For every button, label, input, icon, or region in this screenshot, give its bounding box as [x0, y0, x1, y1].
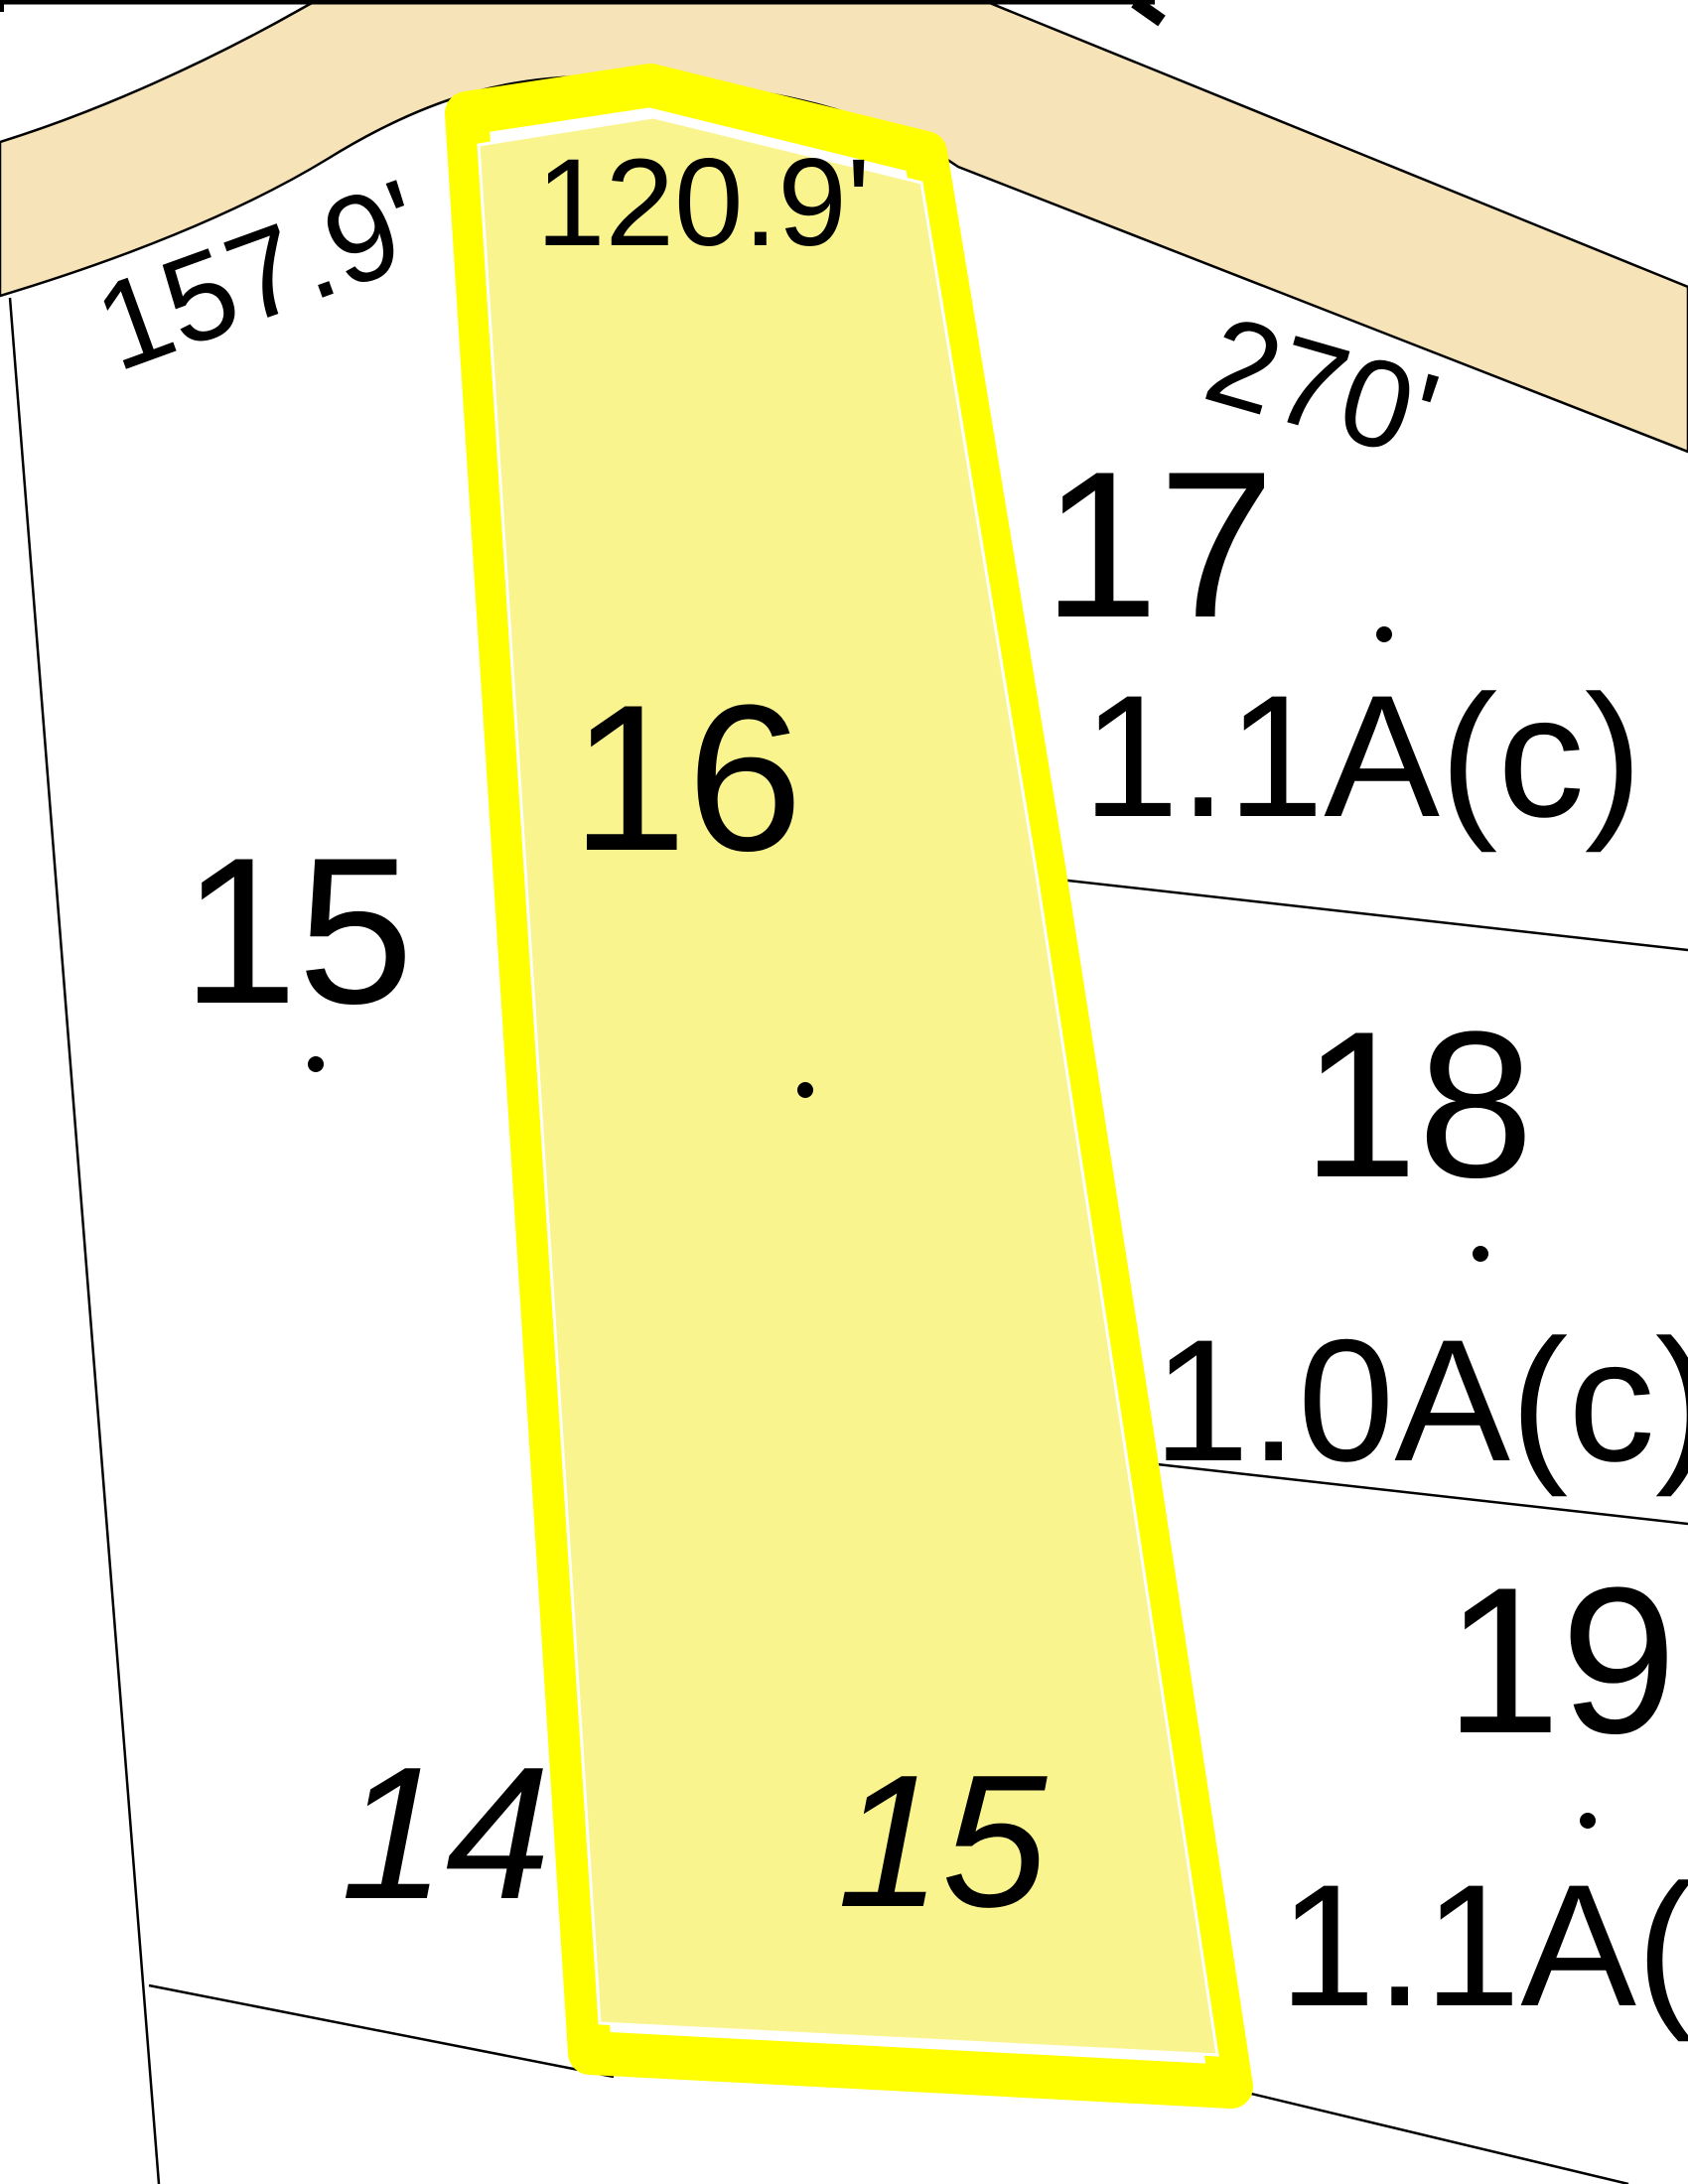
- parcel-17-centroid-dot: [1376, 626, 1392, 642]
- parcel-18-label: 18: [1302, 988, 1534, 1221]
- parcel-18-centroid-dot: [1473, 1246, 1488, 1262]
- parcel-19-area-label: 1.1A(c): [1279, 1849, 1688, 2043]
- parcel-16-centroid-dot: [797, 1082, 813, 1098]
- parcel-19-centroid-dot: [1580, 1813, 1596, 1829]
- lot-15-label: 15: [837, 1736, 1049, 1947]
- parcel17-18-boundary: [1033, 877, 1688, 950]
- parcel-19-label: 19: [1445, 1544, 1677, 1777]
- parcel19-south-boundary: [1226, 2088, 1628, 2184]
- parcel-15-centroid-dot: [308, 1056, 324, 1072]
- parcel-15-label: 15: [182, 814, 414, 1047]
- parcel-14-label: 14: [341, 1728, 550, 1939]
- clipped-glyph-top-right: [1135, 2, 1162, 21]
- dimension-120-9: 120.9': [536, 134, 871, 272]
- parcel-17-label: 17: [1043, 428, 1275, 661]
- parcel14-15-boundary: [149, 1985, 614, 2077]
- parcel-18-area-label: 1.0A(c): [1153, 1304, 1688, 1498]
- parcel-17-area-label: 1.1A(c): [1082, 660, 1642, 854]
- parcel15-west-boundary: [10, 298, 159, 2184]
- parcel-map-canvas[interactable]: 157.9' 120.9' 270' 18 15 16 17 18 19 14 …: [0, 0, 1688, 2184]
- tax-map: 157.9' 120.9' 270' 18 15 16 17 18 19 14 …: [0, 0, 1688, 2184]
- parcel-16-label[interactable]: 16: [571, 661, 803, 894]
